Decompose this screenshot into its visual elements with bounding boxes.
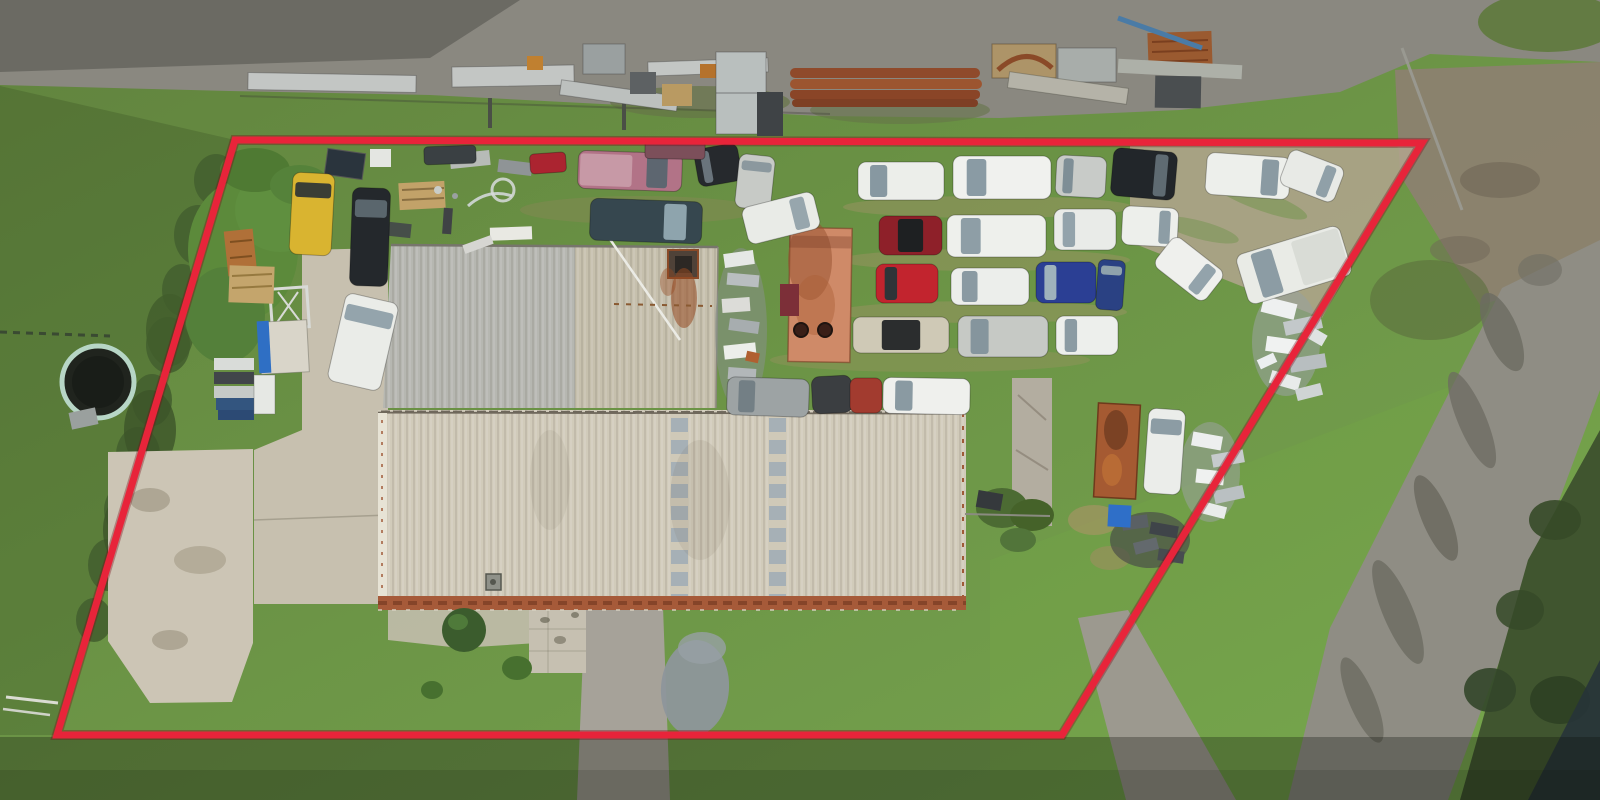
paver-speck bbox=[540, 617, 550, 623]
truck-cab-line bbox=[789, 235, 851, 248]
table-white bbox=[490, 226, 532, 240]
vehicle-windshield bbox=[1260, 159, 1279, 196]
car-dark-roof bbox=[424, 145, 477, 165]
car-white bbox=[1205, 152, 1292, 200]
pallet-wood bbox=[228, 265, 274, 304]
vehicle-body bbox=[424, 145, 477, 165]
roof-stain bbox=[670, 440, 730, 560]
bush bbox=[1496, 590, 1544, 630]
suv-black bbox=[349, 187, 390, 286]
shrub-east bbox=[1000, 528, 1036, 552]
scrap-dot bbox=[434, 186, 442, 194]
shrub bbox=[421, 681, 443, 699]
truck-taillight bbox=[818, 323, 832, 337]
box-white-tall bbox=[254, 375, 275, 414]
crate-gray bbox=[1058, 48, 1116, 82]
shrub bbox=[502, 656, 532, 680]
pad-stain bbox=[130, 488, 170, 512]
car-white bbox=[951, 268, 1029, 305]
scrap-part bbox=[722, 297, 751, 313]
chair-frame bbox=[388, 222, 411, 238]
car-white bbox=[858, 162, 944, 200]
scrap-part-dark bbox=[442, 208, 453, 235]
vehicle-windshield bbox=[885, 267, 897, 300]
fence-post bbox=[622, 102, 626, 130]
trampoline-mat bbox=[72, 356, 124, 408]
layer-orange-truck bbox=[780, 220, 852, 363]
pad-stain bbox=[174, 546, 226, 574]
vehicle-windshield bbox=[1065, 319, 1077, 352]
rusty-pipe bbox=[792, 99, 978, 107]
car-silver bbox=[958, 316, 1048, 357]
fence-post bbox=[488, 98, 492, 128]
cabinet-dark bbox=[757, 92, 783, 136]
mud-dark-patch bbox=[1460, 162, 1540, 198]
paver-speck bbox=[571, 612, 579, 618]
car-blue-small bbox=[1095, 259, 1125, 311]
paver-speck bbox=[554, 636, 566, 644]
car-darkred-sunroof bbox=[879, 216, 942, 255]
bush bbox=[1464, 668, 1516, 712]
pad-stain bbox=[152, 630, 188, 650]
vehicle-windshield bbox=[1044, 265, 1056, 300]
vehicle-windshield bbox=[355, 199, 388, 218]
vehicle-body bbox=[850, 378, 882, 413]
vehicle-windshield bbox=[971, 319, 989, 354]
car-white bbox=[1056, 316, 1118, 355]
vehicle-windshield bbox=[646, 156, 668, 189]
car-part-red bbox=[529, 152, 566, 174]
layer-shadow bbox=[0, 737, 1600, 800]
aerial-photo-screenshot bbox=[0, 0, 1600, 800]
rusty-pipe bbox=[790, 79, 982, 89]
vehicle-body bbox=[1110, 147, 1178, 200]
aerial-photo-canvas bbox=[0, 0, 1600, 800]
pallet-small bbox=[662, 84, 692, 106]
wet-patch bbox=[1518, 254, 1562, 286]
stack-strip bbox=[214, 372, 254, 384]
crate-dark bbox=[1155, 76, 1202, 109]
boxtruck-white bbox=[883, 377, 971, 415]
stack-strip bbox=[214, 358, 254, 370]
rusty-pipe bbox=[790, 90, 980, 99]
box-white bbox=[370, 149, 391, 167]
roof-stain bbox=[530, 430, 570, 530]
container-rust-streak bbox=[1104, 410, 1128, 450]
car-maroon-half bbox=[780, 284, 799, 316]
pickup-teal-dark bbox=[589, 198, 702, 244]
container-rust-streak bbox=[1102, 454, 1122, 486]
car-red bbox=[876, 264, 938, 303]
vehicle-windshield bbox=[967, 159, 987, 196]
machine-orange bbox=[700, 64, 718, 78]
stack-strip bbox=[218, 410, 254, 420]
vehicle-windshield bbox=[1150, 418, 1182, 435]
car-white bbox=[953, 156, 1051, 199]
pallet-wood bbox=[398, 181, 445, 210]
vehicle-body bbox=[1205, 152, 1292, 200]
rust-streak bbox=[660, 268, 676, 296]
weed-patch bbox=[1370, 260, 1490, 340]
vehicle-windshield bbox=[898, 219, 923, 252]
crate-gray bbox=[583, 44, 625, 74]
van-white bbox=[947, 215, 1046, 257]
skylight-strip-gaps bbox=[769, 414, 786, 596]
vehicle-windshield bbox=[895, 380, 913, 410]
car-white bbox=[1054, 209, 1116, 250]
stack-strip bbox=[214, 386, 254, 398]
bluestone-gravel bbox=[678, 632, 726, 664]
truck-taillight bbox=[794, 323, 808, 337]
machine-orange bbox=[527, 56, 543, 70]
vehicle-body bbox=[529, 152, 566, 174]
vehicle-windshield bbox=[870, 165, 887, 197]
vehicle-windshield bbox=[663, 204, 687, 241]
vehicle-windshield bbox=[1158, 210, 1171, 244]
vehicle-windshield bbox=[1063, 212, 1075, 247]
rusty-pipe bbox=[790, 68, 980, 78]
steel-beam bbox=[452, 65, 574, 87]
vehicle-body bbox=[811, 375, 853, 414]
bottom-shadow-band-2 bbox=[0, 770, 1600, 800]
vehicle-windshield bbox=[882, 320, 920, 350]
steel-beam bbox=[248, 73, 416, 93]
car-yellow bbox=[289, 172, 335, 256]
car-blue bbox=[1036, 262, 1096, 303]
stack-strip bbox=[216, 398, 254, 410]
mud-dark-patch bbox=[1430, 236, 1490, 264]
roof-vent-cap bbox=[490, 579, 496, 585]
machine-red bbox=[850, 378, 882, 413]
vehicle-windshield bbox=[961, 218, 981, 254]
machine-dark bbox=[811, 375, 853, 414]
car-beige-dark-windows bbox=[853, 317, 949, 353]
pickup-dark bbox=[1110, 147, 1178, 200]
tree bbox=[442, 608, 486, 652]
bush bbox=[1529, 500, 1581, 540]
vehicle-windshield bbox=[738, 380, 756, 413]
box-blue bbox=[1107, 504, 1131, 527]
box-dark bbox=[630, 72, 656, 94]
car-silver bbox=[1055, 155, 1107, 199]
car-white bbox=[1143, 408, 1186, 495]
vehicle-bed bbox=[579, 153, 632, 187]
flatbed-gray bbox=[726, 377, 809, 418]
scrap-dot bbox=[452, 193, 458, 199]
vehicle-windshield bbox=[962, 271, 978, 302]
vehicle-windshield bbox=[1062, 158, 1074, 193]
vehicle-windshield bbox=[295, 182, 332, 199]
vehicle-windshield bbox=[1101, 265, 1123, 275]
tree-highlight bbox=[448, 614, 468, 630]
